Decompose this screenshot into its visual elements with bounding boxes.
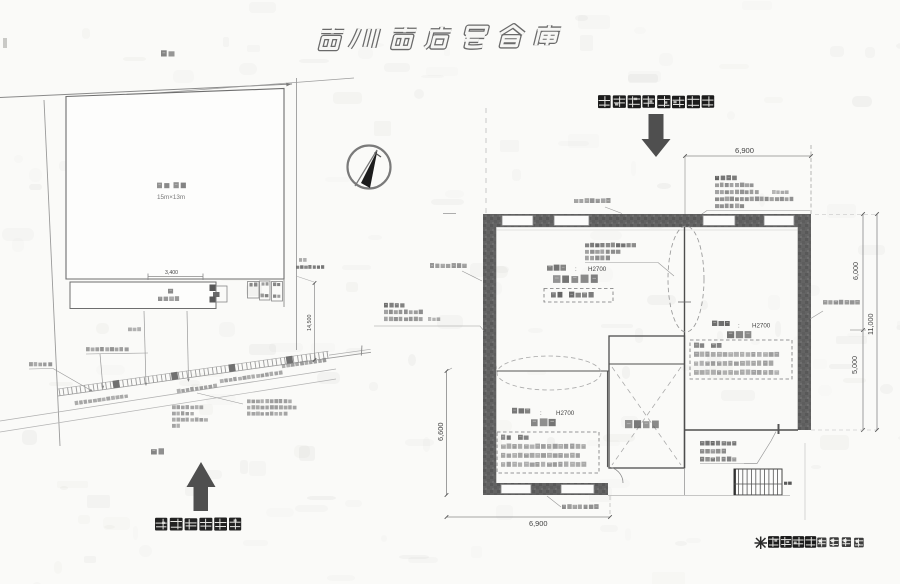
svg-text:11,000: 11,000 (866, 314, 875, 335)
svg-text:6,000: 6,000 (851, 262, 860, 280)
svg-text:H2700: H2700 (752, 323, 771, 330)
svg-text:3,400: 3,400 (165, 270, 178, 276)
svg-text:15m×13m: 15m×13m (157, 194, 185, 201)
svg-text:H2700: H2700 (588, 266, 607, 273)
svg-text:6,600: 6,600 (436, 423, 445, 442)
svg-text:5,000: 5,000 (850, 356, 859, 374)
svg-text:6,900: 6,900 (735, 146, 754, 155)
svg-text:6,900: 6,900 (529, 519, 548, 528)
svg-text:14,500: 14,500 (307, 315, 313, 332)
svg-text:H2700: H2700 (556, 410, 575, 417)
